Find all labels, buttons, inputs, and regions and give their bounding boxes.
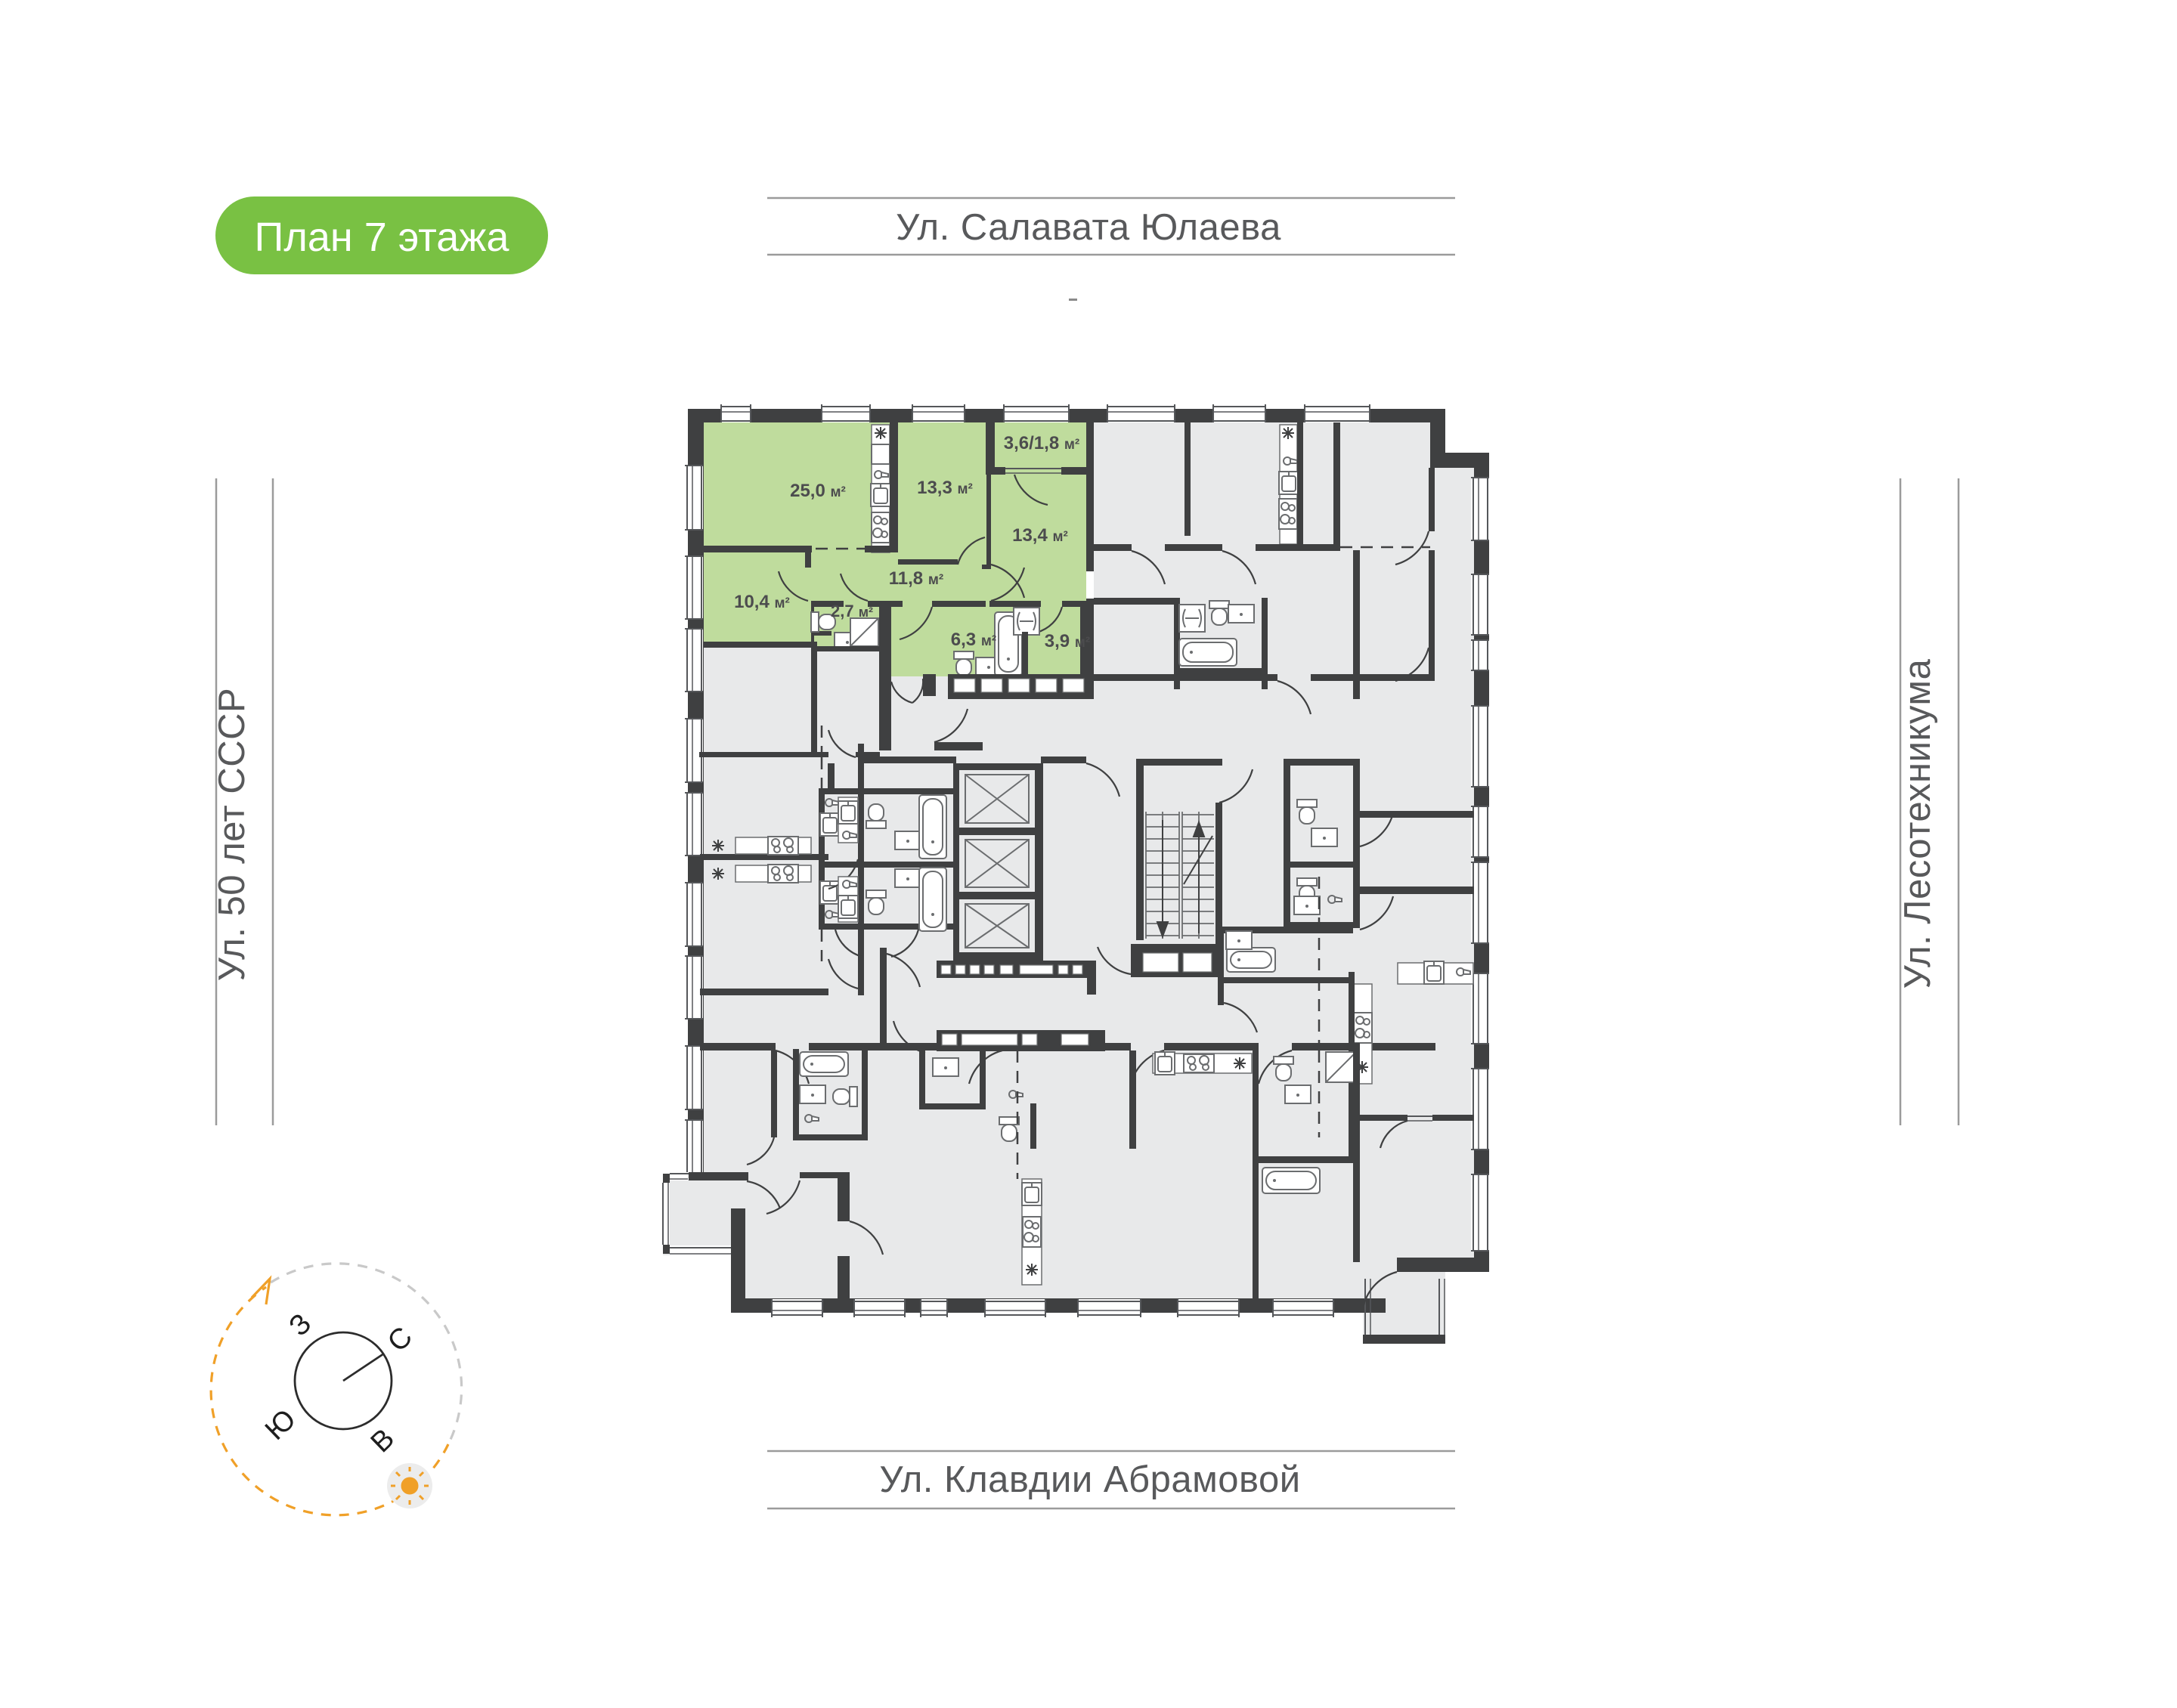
svg-text:10,4 м²: 10,4 м² — [734, 592, 790, 612]
svg-text:Ул. 50 лет СССР: Ул. 50 лет СССР — [212, 688, 252, 981]
svg-text:25,0 м²: 25,0 м² — [790, 481, 846, 501]
svg-text:13,4 м²: 13,4 м² — [1012, 525, 1068, 546]
svg-text:3,9 м²: 3,9 м² — [1045, 631, 1090, 651]
svg-text:13,3 м²: 13,3 м² — [917, 478, 973, 498]
svg-text:3,6/1,8 м²: 3,6/1,8 м² — [1004, 433, 1079, 453]
svg-text:2,7 м²: 2,7 м² — [831, 602, 873, 620]
svg-text:План 7 этажа: План 7 этажа — [255, 215, 510, 260]
svg-text:Ул. Лесотехникума: Ул. Лесотехникума — [1897, 658, 1938, 989]
svg-text:11,8 м²: 11,8 м² — [889, 568, 943, 589]
svg-text:6,3 м²: 6,3 м² — [951, 630, 996, 650]
svg-text:Ул. Салавата Юлаева: Ул. Салавата Юлаева — [896, 207, 1281, 248]
svg-text:Ул. Клавдии Абрамовой: Ул. Клавдии Абрамовой — [879, 1459, 1300, 1500]
